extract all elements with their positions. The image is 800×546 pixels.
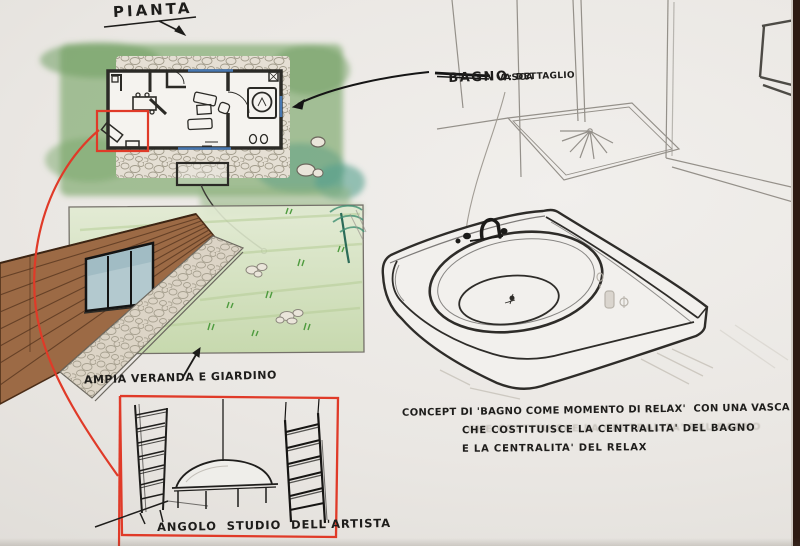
studio-desk-dome [172,399,278,509]
shower-sketch [437,0,800,204]
shower-tray [508,103,679,180]
studio-sketch [95,399,327,527]
shower-drain-icon [560,129,613,159]
studio-right-shelf [285,399,327,523]
photo-edge [793,0,800,546]
bathtub-sketch [383,210,788,399]
sketch-canvas [0,0,800,546]
studio-left-shelf [135,404,167,524]
bath-subtitle-line2: VASCA [497,72,534,84]
concept-note-line3: E LA CENTRALITA' DEL RELAX [462,442,647,455]
sketch-page: PIANTA BAGNO: DETTAGLIO VASCA AMPIA VERA… [0,0,800,546]
paper-edge-highlight [791,0,793,546]
vasca-leader-line [464,92,505,235]
